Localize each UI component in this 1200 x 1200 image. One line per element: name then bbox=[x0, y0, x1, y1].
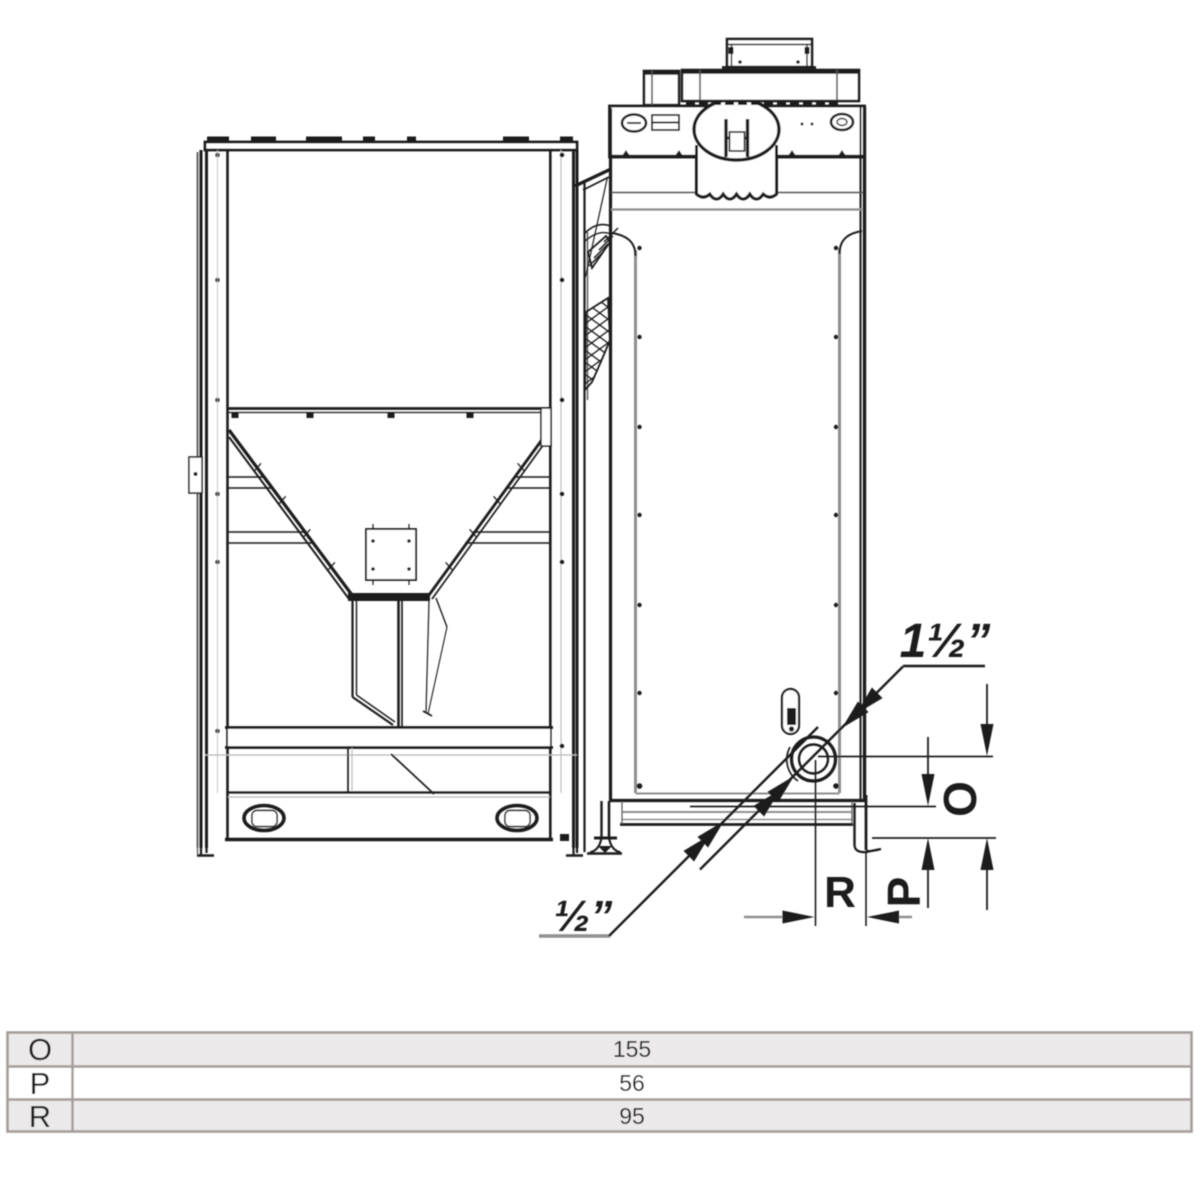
svg-text:56: 56 bbox=[619, 1070, 645, 1096]
svg-text:½”: ½” bbox=[554, 892, 613, 941]
svg-text:1½”: 1½” bbox=[900, 615, 991, 668]
svg-text:O: O bbox=[28, 1032, 52, 1067]
svg-text:R: R bbox=[824, 868, 856, 917]
svg-text:O: O bbox=[934, 781, 986, 817]
svg-text:155: 155 bbox=[613, 1036, 651, 1062]
svg-text:P: P bbox=[30, 1066, 51, 1101]
svg-text:P: P bbox=[878, 877, 930, 908]
svg-text:95: 95 bbox=[619, 1103, 645, 1129]
svg-text:R: R bbox=[29, 1099, 51, 1134]
